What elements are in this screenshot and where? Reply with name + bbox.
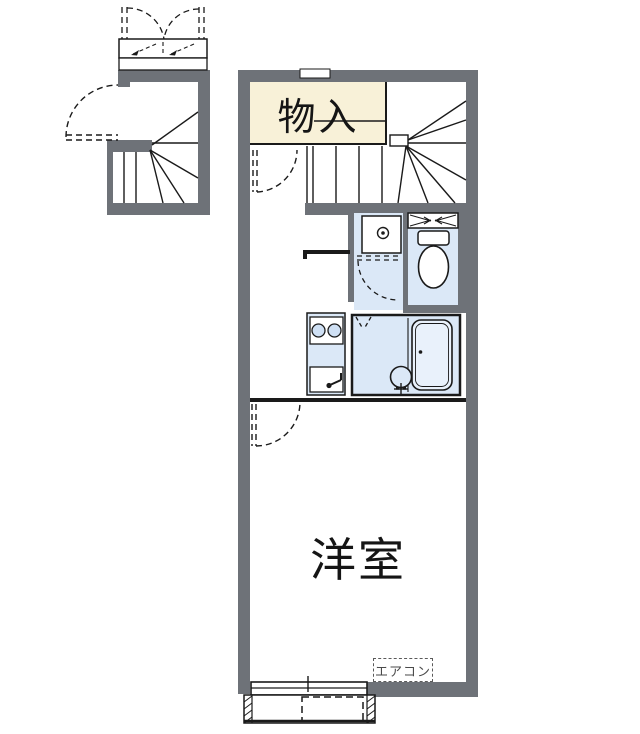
stairwell-entry-door-arc xyxy=(66,85,118,140)
main-room-door-arc xyxy=(252,402,300,446)
bathtub xyxy=(412,320,452,390)
stair-newel-box xyxy=(390,135,408,146)
burner-left xyxy=(312,324,325,337)
kitchen-sink xyxy=(310,367,343,392)
double-entry-doors xyxy=(122,7,204,39)
burner-right xyxy=(328,324,341,337)
kitchen-counter xyxy=(307,313,345,395)
main-room-label: 洋室 xyxy=(250,524,466,590)
exterior-winder-stairs xyxy=(124,112,198,203)
toilet-fixture xyxy=(418,231,449,288)
floor-plan-canvas: 物入 洋室 エアコン xyxy=(0,0,640,734)
unit-entry-door-arc xyxy=(253,150,297,192)
washbasin-vanity xyxy=(362,216,401,253)
kitchen-stub-wall xyxy=(303,250,350,259)
closet-window xyxy=(300,69,330,78)
bathroom-unit xyxy=(352,315,460,395)
washroom-door-arc xyxy=(357,256,399,300)
toilet-window xyxy=(408,213,458,228)
balcony xyxy=(244,695,375,723)
aircon-label: エアコン xyxy=(373,658,433,682)
entry-porch xyxy=(119,39,207,70)
bathtub-handle-dot xyxy=(419,350,423,354)
closet-label: 物入 xyxy=(250,82,387,144)
main-room-window xyxy=(251,676,367,695)
